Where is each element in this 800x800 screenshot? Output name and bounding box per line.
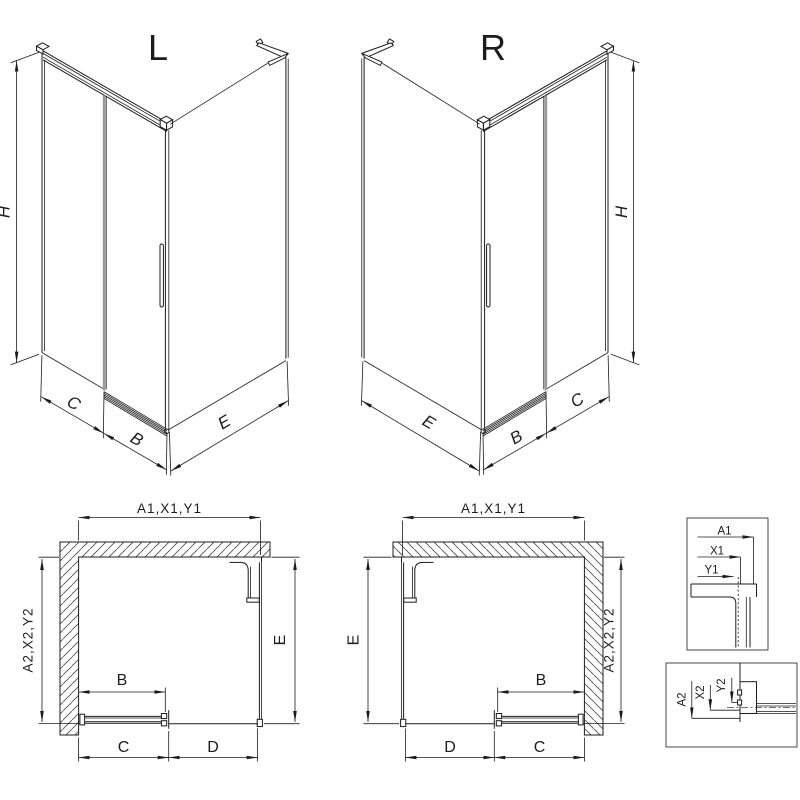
plan-left-d-label: D bbox=[207, 739, 219, 756]
iso-view-right: R H E B C bbox=[361, 27, 639, 476]
dim-label-b-right: B bbox=[507, 426, 526, 448]
detail-y1-label: Y1 bbox=[704, 565, 718, 577]
dim-label-c-right: C bbox=[567, 389, 588, 412]
detail-x1-label: X1 bbox=[710, 546, 724, 558]
dim-label-e-right: E bbox=[419, 411, 439, 433]
detail-view-width: A1 X1 Y1 bbox=[687, 518, 768, 650]
detail-a1-label: A1 bbox=[717, 526, 731, 538]
plan-view-left: A1,X1,Y1 A2,X2,Y2 E B C D bbox=[21, 501, 300, 762]
plan-right-c-label: C bbox=[534, 739, 546, 756]
plan-left-c-label: C bbox=[118, 739, 130, 756]
rail-section bbox=[740, 682, 757, 714]
plan-right-e-label: E bbox=[346, 635, 363, 646]
detail-x2-label: X2 bbox=[695, 685, 707, 699]
detail-y2-label: Y2 bbox=[716, 678, 728, 692]
plan-left-b-label: B bbox=[117, 672, 128, 689]
plan-right-d-label: D bbox=[444, 739, 456, 756]
dim-label-h-right: H bbox=[612, 205, 631, 218]
plan-right-depth-label: A2,X2,Y2 bbox=[602, 607, 617, 672]
plan-left-width-label: A1,X1,Y1 bbox=[137, 501, 202, 516]
plan-right-b-label: B bbox=[536, 672, 547, 689]
iso-view-left: L H C B E bbox=[0, 27, 289, 476]
dim-label-h-left: H bbox=[0, 205, 14, 218]
dim-label-b-left: B bbox=[127, 428, 146, 450]
plan-view-right: A1,X1,Y1 A2,X2,Y2 E B D C bbox=[346, 501, 625, 762]
detail-a2-label: A2 bbox=[677, 692, 689, 706]
plan-right-width-label: A1,X1,Y1 bbox=[461, 501, 526, 516]
plan-left-depth-label: A2,X2,Y2 bbox=[21, 607, 36, 672]
iso-left-title: L bbox=[148, 27, 168, 68]
detail-view-depth: A2 X2 Y2 bbox=[666, 663, 797, 747]
dim-label-e-left: E bbox=[214, 411, 234, 433]
iso-right-title: R bbox=[480, 27, 506, 68]
plan-left-e-label: E bbox=[272, 635, 289, 646]
shower-enclosure-drawing: L H C B E R H E B C A1,X1,Y1 A2,X2,Y2 E … bbox=[0, 0, 800, 800]
technical-drawing-page: L H C B E R H E B C A1,X1,Y1 A2,X2,Y2 E … bbox=[0, 0, 800, 800]
